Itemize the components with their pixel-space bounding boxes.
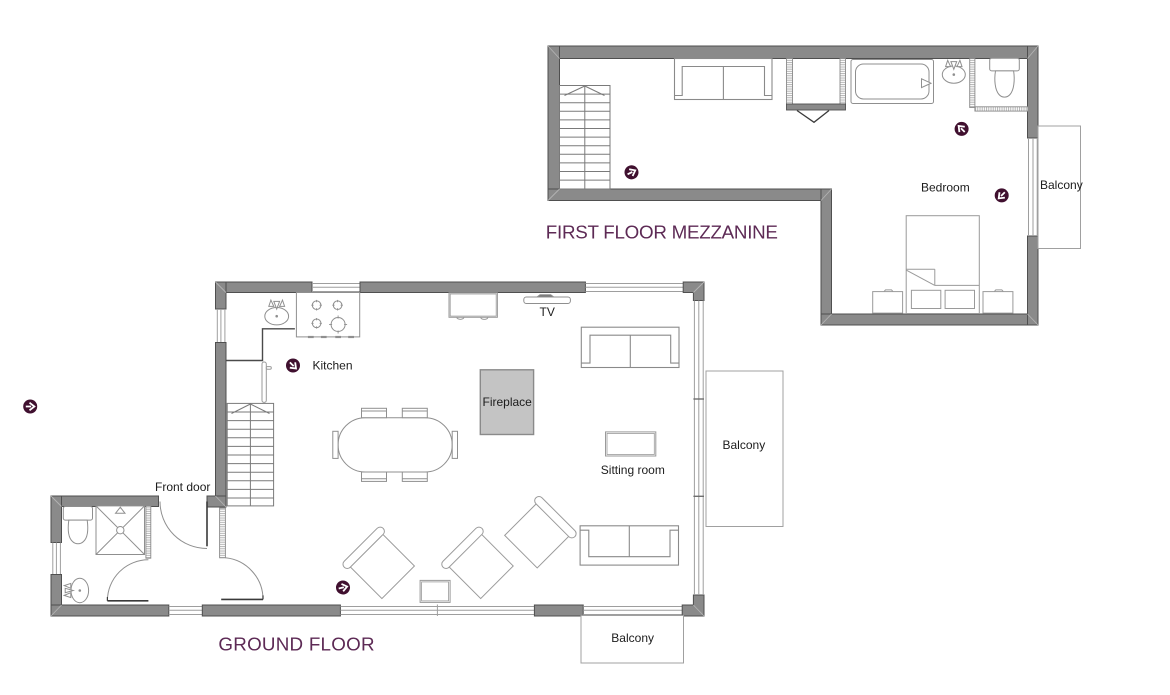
svg-text:Sitting room: Sitting room xyxy=(601,463,665,477)
svg-text:Balcony: Balcony xyxy=(1040,178,1083,192)
svg-text:Front door: Front door xyxy=(155,480,210,494)
svg-text:TV: TV xyxy=(540,305,555,319)
svg-text:Bedroom: Bedroom xyxy=(921,180,970,194)
svg-text:Fireplace: Fireplace xyxy=(483,395,533,409)
svg-text:GROUND FLOOR: GROUND FLOOR xyxy=(218,634,374,655)
svg-text:Kitchen: Kitchen xyxy=(313,358,353,372)
svg-text:Balcony: Balcony xyxy=(723,438,766,452)
svg-text:FIRST FLOOR MEZZANINE: FIRST FLOOR MEZZANINE xyxy=(546,222,778,243)
svg-text:Balcony: Balcony xyxy=(611,631,654,645)
